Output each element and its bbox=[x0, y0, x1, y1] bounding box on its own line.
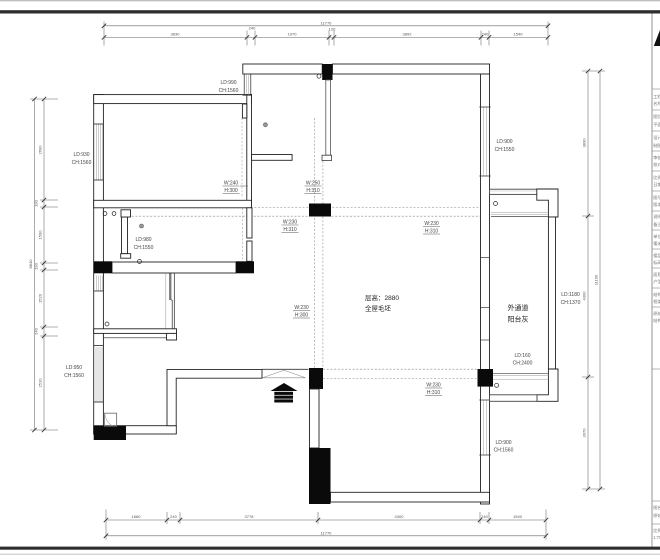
svg-text:框架: 框架 bbox=[653, 298, 660, 305]
svg-text:CH:1560: CH:1560 bbox=[64, 373, 84, 379]
svg-text:W:230: W:230 bbox=[294, 305, 309, 311]
svg-text:审核: 审核 bbox=[653, 154, 660, 161]
svg-text:LD:900: LD:900 bbox=[496, 139, 512, 145]
svg-text:240: 240 bbox=[482, 31, 489, 36]
svg-text:11770: 11770 bbox=[321, 20, 333, 25]
svg-text:120: 120 bbox=[329, 27, 336, 32]
svg-text:全屋毛坯: 全屋毛坯 bbox=[365, 304, 392, 313]
svg-text:层高：2880: 层高：2880 bbox=[365, 293, 399, 302]
svg-text:W:240: W:240 bbox=[224, 181, 239, 187]
svg-text:原始: 原始 bbox=[653, 512, 660, 519]
svg-text:4300: 4300 bbox=[582, 291, 587, 301]
svg-text:说明: 说明 bbox=[653, 213, 660, 220]
svg-text:CH:1550: CH:1550 bbox=[495, 147, 515, 153]
svg-text:1500: 1500 bbox=[38, 230, 43, 240]
svg-text:W:230: W:230 bbox=[424, 221, 439, 227]
svg-text:H:300: H:300 bbox=[224, 188, 238, 194]
svg-text:版本: 版本 bbox=[653, 201, 660, 208]
svg-text:11160: 11160 bbox=[594, 274, 599, 285]
svg-text:1:75: 1:75 bbox=[653, 535, 660, 540]
svg-text:备注: 备注 bbox=[653, 221, 660, 228]
svg-text:阳台灰: 阳台灰 bbox=[508, 315, 529, 324]
svg-text:制图: 制图 bbox=[653, 142, 660, 149]
svg-text:H:310: H:310 bbox=[427, 390, 441, 396]
svg-text:LD:1180: LD:1180 bbox=[561, 292, 580, 298]
svg-text:LD:990: LD:990 bbox=[220, 80, 236, 86]
svg-text:8840: 8840 bbox=[28, 259, 33, 269]
svg-text:1540: 1540 bbox=[514, 31, 524, 36]
svg-text:2690: 2690 bbox=[38, 145, 43, 155]
svg-text:3778: 3778 bbox=[245, 514, 255, 519]
svg-text:1540: 1540 bbox=[513, 514, 523, 519]
svg-text:1520: 1520 bbox=[38, 293, 43, 303]
svg-text:H:310: H:310 bbox=[306, 188, 320, 194]
svg-text:标高: 标高 bbox=[653, 259, 660, 266]
svg-text:LD:930: LD:930 bbox=[73, 152, 89, 158]
svg-text:图别: 图别 bbox=[653, 113, 660, 120]
svg-text:图名: 图名 bbox=[653, 504, 660, 511]
svg-text:1660: 1660 bbox=[132, 514, 142, 519]
svg-text:单位: 单位 bbox=[653, 233, 660, 240]
svg-text:3070: 3070 bbox=[582, 428, 587, 438]
svg-text:户型: 户型 bbox=[653, 278, 660, 285]
svg-text:名称: 名称 bbox=[653, 100, 660, 107]
svg-text:W:230: W:230 bbox=[426, 383, 441, 389]
svg-text:W:230: W:230 bbox=[283, 220, 298, 226]
svg-text:比例: 比例 bbox=[653, 527, 660, 534]
svg-text:240: 240 bbox=[481, 514, 488, 519]
svg-text:3892: 3892 bbox=[403, 32, 413, 37]
svg-text:LD:950: LD:950 bbox=[66, 365, 82, 371]
svg-text:H:310: H:310 bbox=[425, 229, 439, 235]
svg-text:LD:160: LD:160 bbox=[514, 353, 530, 359]
svg-text:外通道: 外通道 bbox=[508, 303, 529, 312]
svg-text:1970: 1970 bbox=[288, 32, 298, 37]
svg-text:H:300: H:300 bbox=[295, 313, 309, 319]
svg-text:CH:1560: CH:1560 bbox=[72, 160, 92, 166]
svg-text:LD:900: LD:900 bbox=[495, 440, 511, 446]
svg-text:CH:1560: CH:1560 bbox=[219, 88, 239, 94]
svg-text:比例: 比例 bbox=[653, 174, 660, 181]
svg-text:4300: 4300 bbox=[395, 514, 405, 519]
svg-text:工程: 工程 bbox=[653, 93, 660, 100]
svg-text:240: 240 bbox=[170, 514, 177, 519]
svg-text:CH:1550: CH:1550 bbox=[134, 245, 154, 251]
svg-text:3830: 3830 bbox=[582, 138, 587, 148]
svg-text:240: 240 bbox=[249, 26, 256, 31]
svg-text:原始: 原始 bbox=[653, 310, 660, 317]
svg-text:CH:1560: CH:1560 bbox=[494, 448, 514, 454]
svg-text:190: 190 bbox=[34, 199, 39, 206]
svg-text:CH:2400: CH:2400 bbox=[513, 361, 533, 367]
svg-text:3830: 3830 bbox=[171, 32, 181, 37]
svg-text:H:310: H:310 bbox=[283, 227, 297, 233]
svg-text:LD:980: LD:980 bbox=[135, 237, 151, 243]
svg-text:2510: 2510 bbox=[38, 378, 43, 388]
svg-text:CH:1370: CH:1370 bbox=[561, 300, 581, 306]
svg-text:面积: 面积 bbox=[653, 271, 660, 278]
svg-text:11770: 11770 bbox=[321, 530, 333, 535]
svg-text:毫米: 毫米 bbox=[653, 240, 660, 247]
svg-text:190: 190 bbox=[34, 262, 39, 269]
svg-text:结构: 结构 bbox=[653, 291, 660, 298]
svg-text:结构: 结构 bbox=[653, 317, 660, 324]
svg-text:楼层: 楼层 bbox=[653, 252, 660, 259]
svg-text:240: 240 bbox=[34, 327, 39, 334]
svg-text:W:250: W:250 bbox=[306, 181, 321, 187]
svg-text:校对: 校对 bbox=[653, 161, 660, 168]
svg-text:设计: 设计 bbox=[653, 134, 660, 141]
